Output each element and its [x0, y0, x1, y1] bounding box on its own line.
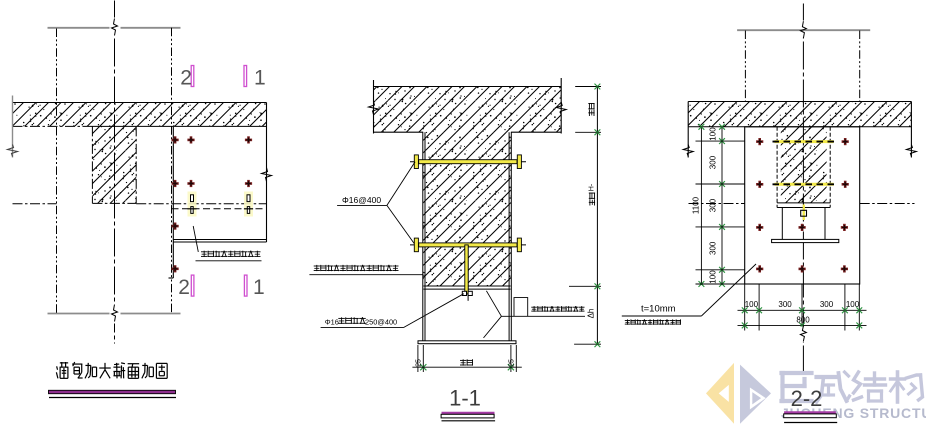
svg-text:Δh: Δh	[587, 309, 596, 319]
svg-text:100: 100	[709, 270, 718, 284]
svg-text:300: 300	[709, 198, 718, 212]
svg-text:Φ16: Φ16	[325, 318, 339, 327]
svg-text:100: 100	[745, 300, 759, 309]
svg-text:250@400: 250@400	[365, 318, 397, 327]
svg-text:Φ16@400: Φ16@400	[342, 195, 381, 205]
svg-text:H-: H-	[588, 183, 595, 191]
svg-text:1-1: 1-1	[449, 386, 481, 411]
svg-text:300: 300	[778, 300, 792, 309]
svg-text:25: 25	[509, 359, 516, 367]
svg-text:100: 100	[846, 300, 860, 309]
svg-text:1100: 1100	[692, 196, 701, 214]
svg-text:100: 100	[709, 127, 718, 141]
svg-text:1: 1	[254, 66, 266, 89]
svg-text:2: 2	[178, 276, 190, 299]
svg-text:800: 800	[796, 315, 810, 324]
svg-text:t=10mm: t=10mm	[641, 304, 676, 315]
svg-text:2: 2	[180, 66, 192, 89]
svg-text:25: 25	[416, 359, 423, 367]
svg-text:2-2: 2-2	[791, 386, 823, 411]
svg-text:1: 1	[253, 276, 265, 299]
svg-text:300: 300	[709, 155, 718, 169]
svg-text:300: 300	[709, 241, 718, 255]
svg-text:300: 300	[820, 300, 834, 309]
